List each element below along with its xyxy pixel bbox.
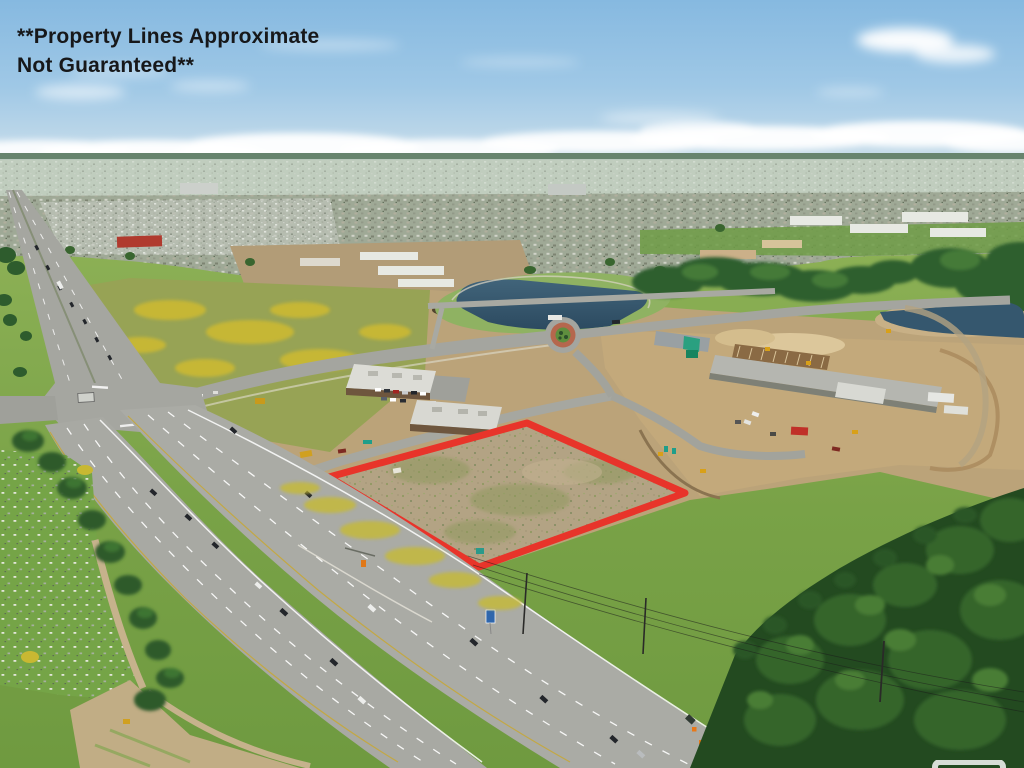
realtor-logo: R REALTOR ® bbox=[926, 760, 1012, 768]
red-container bbox=[791, 427, 808, 436]
realtor-logo-letter: R bbox=[939, 764, 1000, 768]
disclaimer-text: **Property Lines Approximate Not Guarant… bbox=[17, 22, 319, 80]
red-roof-building bbox=[117, 235, 162, 248]
blue-highway-sign bbox=[486, 610, 495, 623]
bus-shelter bbox=[78, 393, 94, 403]
orange-worker bbox=[692, 727, 697, 732]
aerial-photo: **Property Lines Approximate Not Guarant… bbox=[0, 0, 1024, 768]
disclaimer-line-2: Not Guaranteed** bbox=[17, 51, 319, 80]
roundabout bbox=[545, 317, 581, 353]
photo-canvas bbox=[0, 0, 1024, 768]
site-trailer bbox=[928, 392, 955, 403]
teal-shed bbox=[476, 548, 484, 554]
disclaimer-line-1: **Property Lines Approximate bbox=[17, 22, 319, 51]
